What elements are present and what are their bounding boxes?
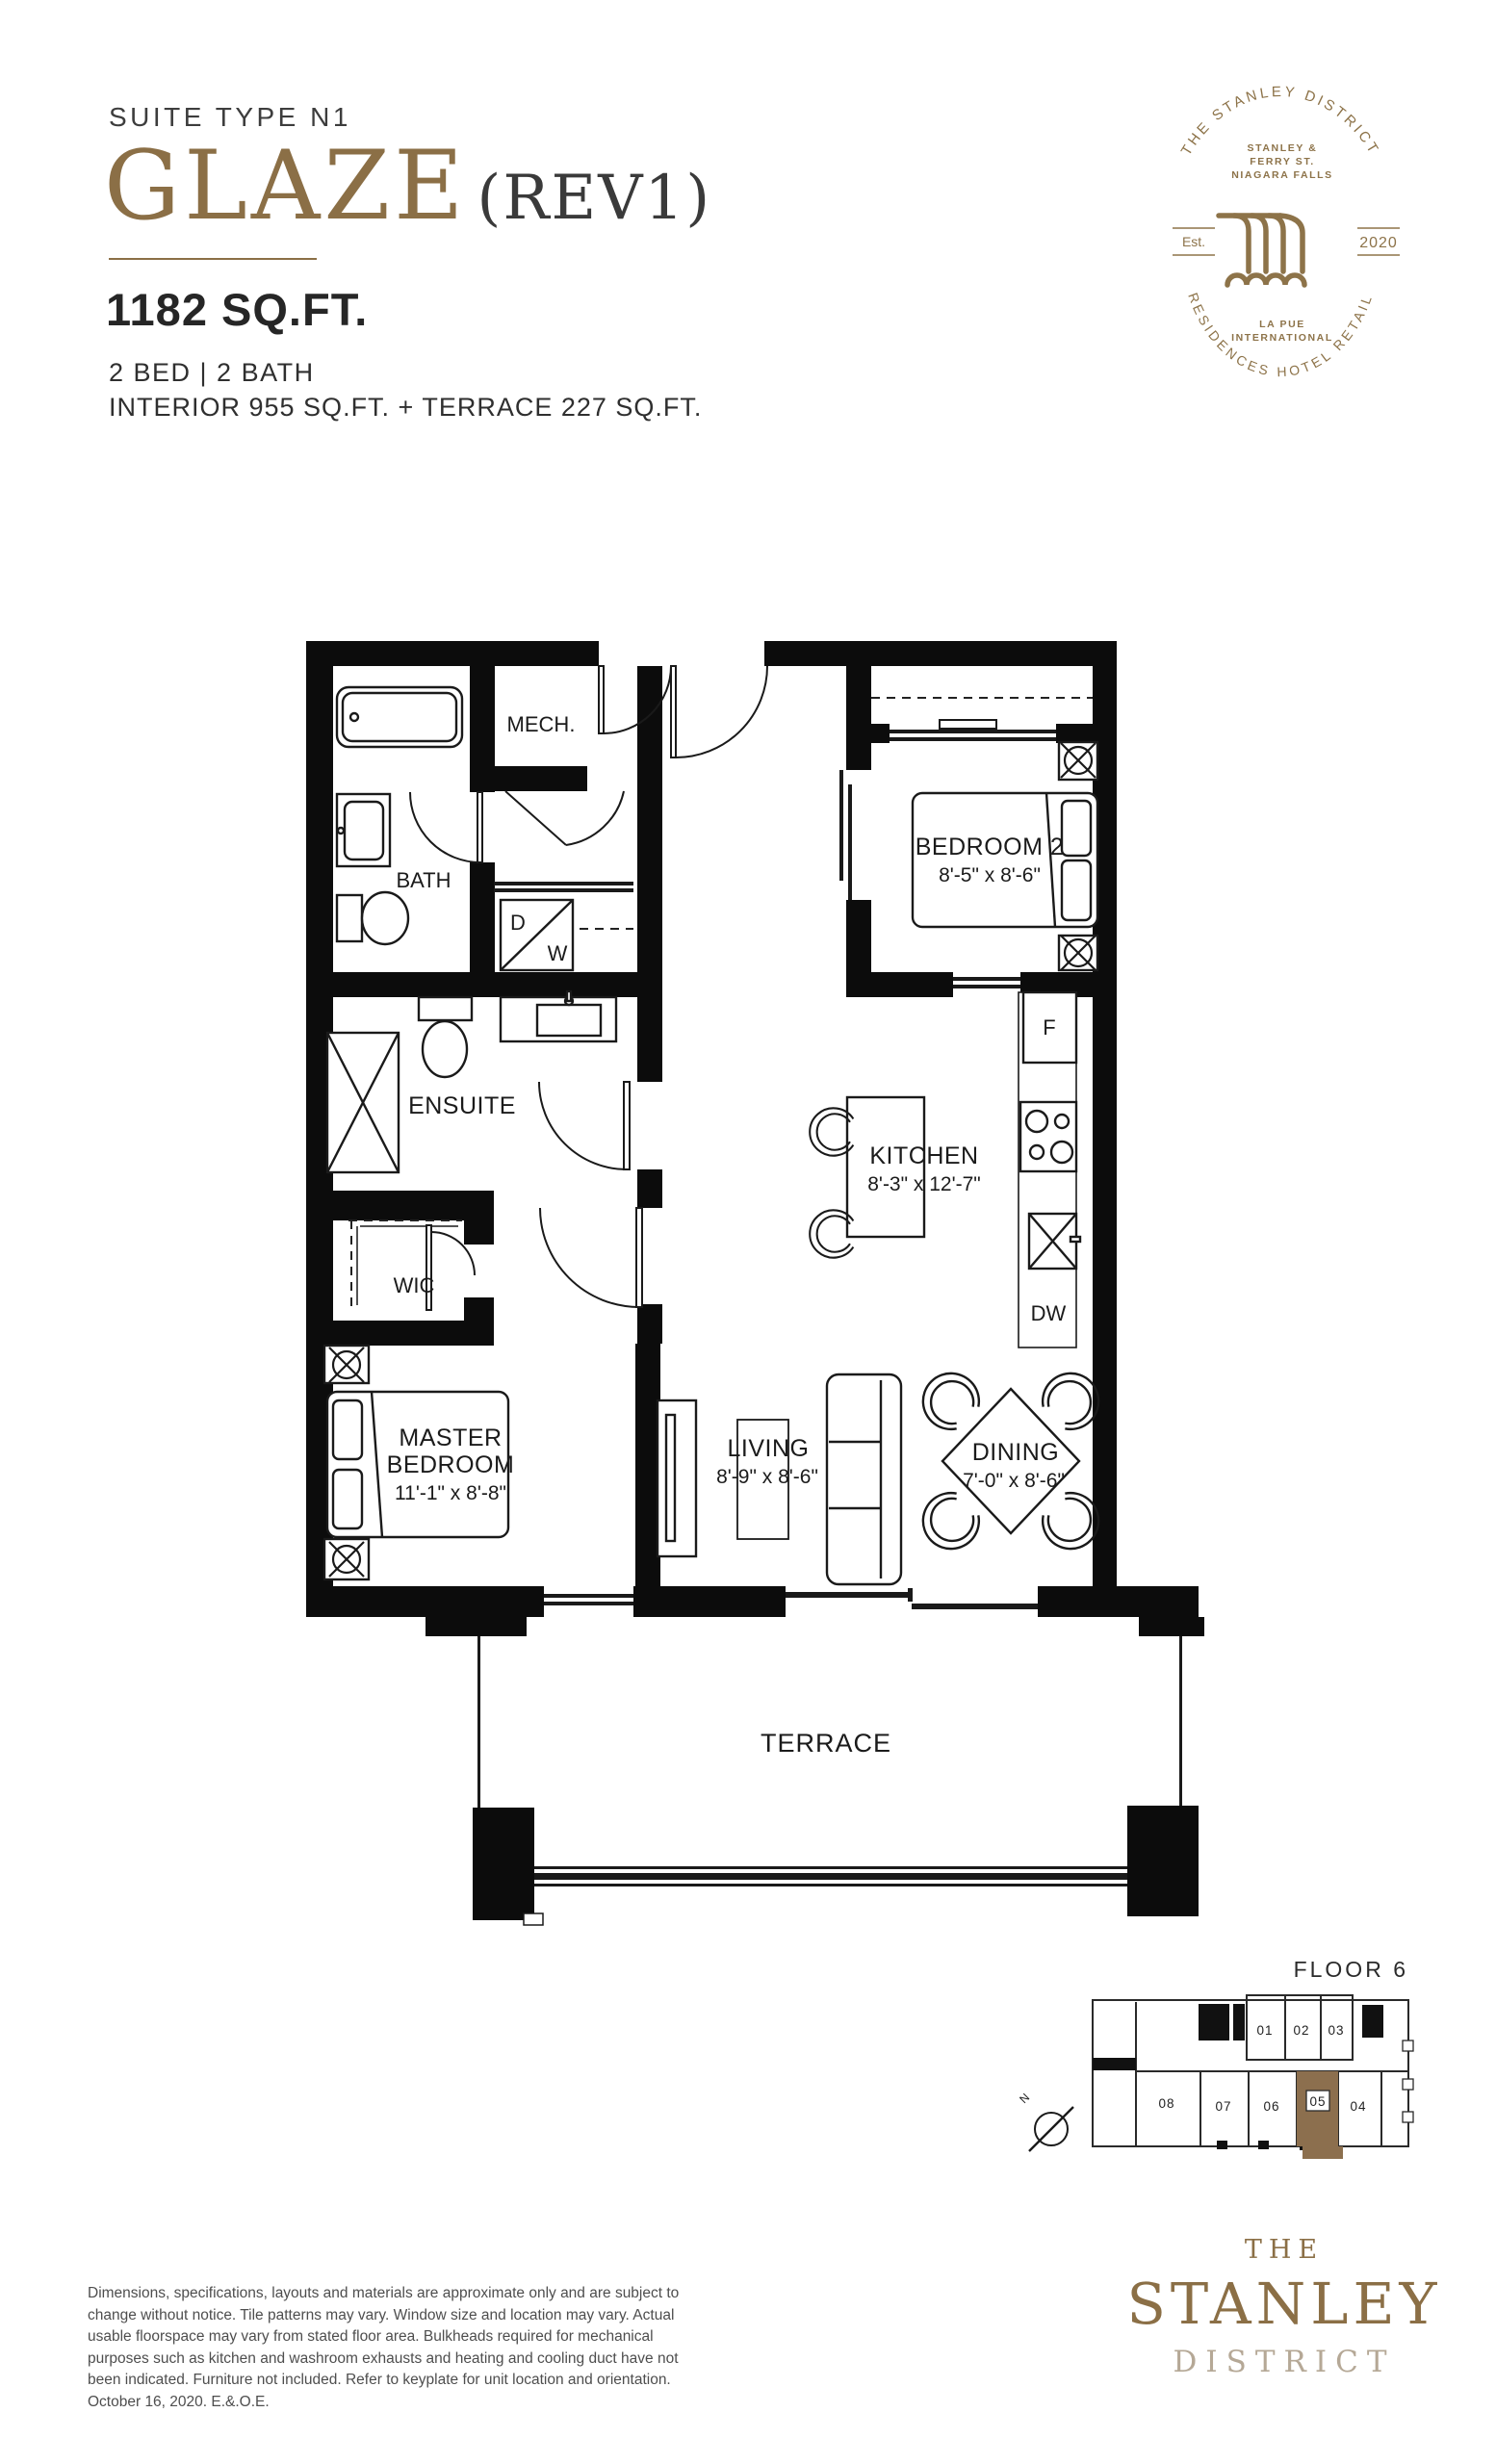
label-dishwasher: DW — [1031, 1301, 1067, 1325]
ensuite-toilet-icon — [419, 997, 472, 1077]
badge-address-1: STANLEY & — [1248, 142, 1318, 154]
badge-est-label: Est. — [1182, 234, 1205, 249]
badge-address-2: FERRY ST. — [1250, 156, 1315, 167]
room-label-wic: WIC — [394, 1273, 435, 1297]
label-washer: W — [548, 941, 568, 965]
room-label-master-2: BEDROOM — [387, 1451, 515, 1478]
badge-brand-1: LA PUE — [1259, 319, 1305, 330]
kitchen-sink-icon — [1029, 1214, 1080, 1269]
room-label-bedroom2: BEDROOM 2 — [916, 834, 1065, 860]
badge-year: 2020 — [1359, 235, 1398, 251]
wordmark-stanley: STANLEY — [1121, 2271, 1448, 2337]
north-label: N — [1017, 2091, 1032, 2106]
disclaimer-line: October 16, 2020. E.&.O.E. — [88, 2392, 723, 2414]
room-dims-bedroom2: 8'-5" x 8'-6" — [939, 864, 1041, 886]
keyplate-unit-08: 08 — [1158, 2096, 1174, 2111]
suite-type-label: SUITE TYPE N1 — [109, 102, 351, 133]
floor-plan: MECH. BATH D W BEDROOM 2 8'-5" x 8'-6" E… — [289, 597, 1213, 1963]
gold-divider — [109, 258, 317, 260]
linen-closet-icon — [327, 1033, 399, 1172]
keyplate-unit-07: 07 — [1215, 2099, 1231, 2114]
waterfall-logo-icon — [1219, 216, 1304, 285]
bath-vanity-icon — [337, 794, 390, 866]
keyplate-title: FLOOR 6 — [1294, 1957, 1408, 1982]
bath-toilet-icon — [337, 892, 408, 944]
stove-icon — [1020, 1102, 1076, 1171]
room-label-dining: DINING — [972, 1439, 1060, 1466]
disclaimer-text: Dimensions, specifications, layouts and … — [88, 2283, 723, 2413]
room-label-terrace: TERRACE — [761, 1729, 891, 1758]
room-dims-kitchen: 8'-3" x 12'-7" — [867, 1173, 980, 1195]
room-dims-dining: 7'-0" x 8'-6" — [963, 1470, 1065, 1492]
room-dims-master: 11'-1" x 8'-8" — [395, 1482, 506, 1504]
disclaimer-line: change without notice. Tile patterns may… — [88, 2305, 723, 2327]
floorplan-sheet: SUITE TYPE N1 GLAZE(REV1) 1182 SQ.FT. 2 … — [0, 0, 1496, 2464]
keyplate: FLOOR 6 — [1001, 1956, 1425, 2196]
room-label-bath: BATH — [396, 868, 451, 892]
room-label-mech: MECH. — [507, 712, 576, 736]
wordmark-the: THE — [1121, 2235, 1448, 2265]
keyplate-unit-04: 04 — [1350, 2099, 1366, 2114]
disclaimer-line: usable floorspace may vary from stated f… — [88, 2326, 723, 2348]
north-arrow-icon: N — [1017, 2091, 1073, 2151]
room-label-kitchen: KITCHEN — [869, 1142, 978, 1169]
keyplate-unit-02: 02 — [1293, 2023, 1309, 2038]
plan-revision: (REV1) — [477, 163, 711, 234]
keyplate-unit-01: 01 — [1256, 2023, 1273, 2038]
area-breakdown: INTERIOR 955 SQ.FT. + TERRACE 227 SQ.FT. — [109, 393, 702, 423]
total-area: 1182 SQ.FT. — [106, 283, 368, 336]
tv-console-icon — [658, 1400, 696, 1556]
label-dryer: D — [510, 911, 526, 935]
label-fridge: F — [1043, 1015, 1055, 1039]
plan-title: GLAZE(REV1) — [104, 135, 711, 240]
plan-name: GLAZE — [104, 131, 467, 242]
room-label-living: LIVING — [728, 1435, 810, 1462]
keyplate-unit-06: 06 — [1263, 2099, 1279, 2114]
disclaimer-line: purposes such as kitchen and washroom ex… — [88, 2348, 723, 2371]
room-label-master-1: MASTER — [399, 1424, 502, 1451]
disclaimer-line: Dimensions, specifications, layouts and … — [88, 2283, 723, 2305]
disclaimer-line: been indicated. Furniture not included. … — [88, 2370, 723, 2392]
stanley-district-badge: THE STANLEY DISTRICT RESIDENCES HOTEL RE… — [1136, 72, 1425, 399]
bed-bath-count: 2 BED | 2 BATH — [109, 358, 315, 388]
terrace-column-base — [524, 1913, 543, 1925]
bedroom2-window-mullion — [940, 720, 996, 729]
keyplate-unit-05: 05 — [1309, 2094, 1326, 2109]
stanley-district-wordmark: THE STANLEY DISTRICT — [1121, 2235, 1448, 2379]
bathtub-icon — [337, 687, 462, 747]
ensuite-vanity-icon — [501, 991, 616, 1041]
badge-brand-2: INTERNATIONAL — [1231, 332, 1333, 344]
keyplate-unit-03: 03 — [1328, 2023, 1344, 2038]
room-label-ensuite: ENSUITE — [408, 1092, 516, 1119]
wordmark-district: DISTRICT — [1121, 2345, 1448, 2379]
badge-address-3: NIAGARA FALLS — [1231, 169, 1333, 181]
sofa-icon — [827, 1374, 901, 1584]
room-dims-living: 8'-9" x 8'-6" — [716, 1466, 818, 1488]
